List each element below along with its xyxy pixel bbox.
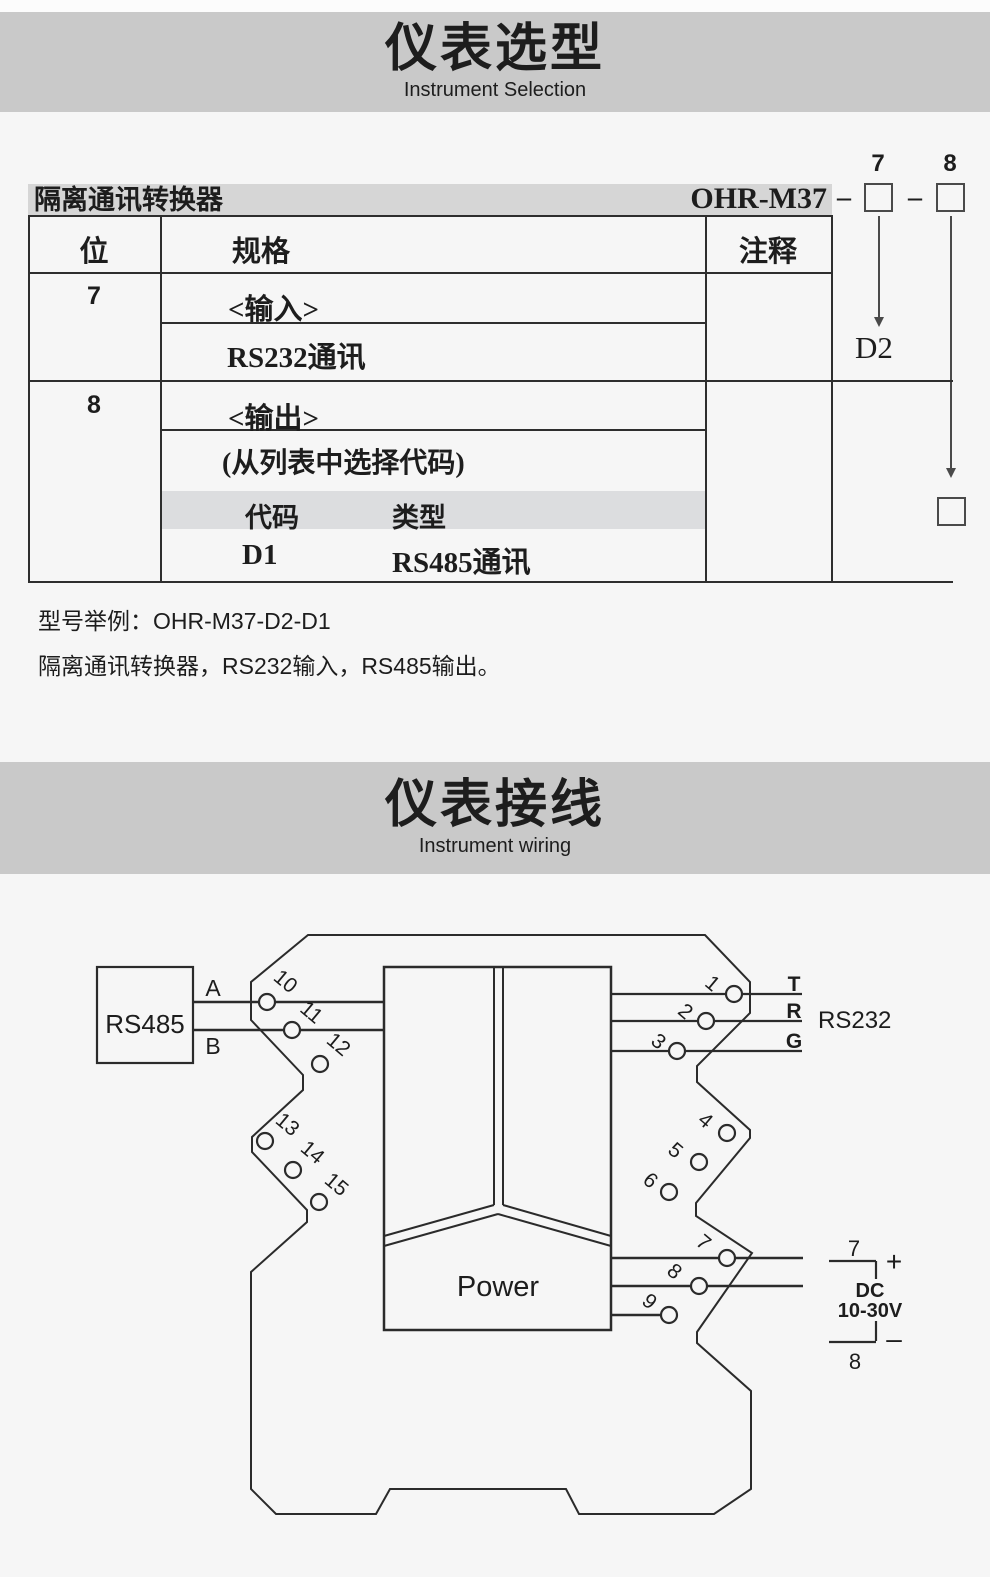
terminal-number-13: 13 (271, 1108, 304, 1141)
dc-top-terminal: 7 (848, 1236, 860, 1261)
wiring-header-band: 仪表接线 Instrument wiring (0, 762, 990, 874)
arrow-down-icon (874, 317, 884, 327)
terminal-circle-15 (311, 1194, 327, 1210)
row7-group: <输入> (228, 286, 319, 328)
row8-hint: (从列表中选择代码) (222, 441, 465, 481)
terminal-circle-8 (691, 1278, 707, 1294)
code-dash-2: – (908, 193, 922, 203)
row8-group: <输出> (228, 395, 319, 437)
row7-item: RS232通讯 (227, 334, 366, 376)
line-a-label: A (205, 975, 221, 1001)
table-border (160, 215, 162, 583)
top-margin (0, 0, 990, 12)
table-border (831, 215, 833, 583)
terminal-number-7: 7 (691, 1230, 715, 1255)
terminal-circle-2 (698, 1013, 714, 1029)
table-border (28, 380, 953, 382)
arrow-line-8 (950, 216, 952, 469)
selection-subtitle: Instrument Selection (404, 79, 586, 102)
arrow-down-icon (946, 468, 956, 478)
terminal-circle-11 (284, 1022, 300, 1038)
terminal-circle-1 (726, 986, 742, 1002)
terminal-number-14: 14 (296, 1136, 329, 1169)
dc-name: DC (856, 1280, 885, 1302)
rs232-label: RS232 (818, 1007, 891, 1034)
terminal-circle-14 (285, 1162, 301, 1178)
table-border (705, 215, 707, 583)
d2-callout: D2 (855, 330, 893, 366)
dc-range: 10-30V (838, 1300, 903, 1322)
product-bar: 隔离通讯转换器 OHR-M37 (28, 184, 832, 216)
header-spec: 规格 (232, 228, 290, 270)
core-v-line (384, 1214, 498, 1246)
r-label: R (786, 1000, 801, 1023)
datasheet-page: 仪表选型 Instrument Selection 隔离通讯转换器 OHR-M3… (0, 0, 990, 1577)
terminal-number-6: 6 (638, 1168, 662, 1193)
row8-digit: 8 (28, 391, 160, 420)
terminal-number-9: 9 (637, 1289, 661, 1314)
rs485-label: RS485 (105, 1009, 185, 1039)
wiring-diagram: RS485 A B Power T R G RS232 7 + DC 10-30… (0, 874, 990, 1577)
type-value: RS485通讯 (392, 539, 531, 581)
terminal-number-4: 4 (693, 1108, 717, 1133)
terminal-number-10: 10 (269, 965, 302, 998)
type-header: 类型 (392, 496, 446, 535)
code-value: D1 (242, 539, 277, 572)
selection-title: 仪表选型 (385, 22, 605, 77)
code-header: 代码 (245, 496, 299, 535)
row7-digit: 7 (28, 282, 160, 311)
wiring-subtitle: Instrument wiring (419, 835, 571, 858)
selection-header-band: 仪表选型 Instrument Selection (0, 12, 990, 112)
terminal-number-12: 12 (322, 1028, 355, 1061)
arrow-line-7 (878, 216, 880, 318)
digit-label-8: 8 (935, 150, 965, 178)
line-b-label: B (205, 1033, 220, 1059)
dc-plus: + (886, 1246, 902, 1277)
terminal-number-8: 8 (662, 1259, 686, 1284)
header-note: 注释 (705, 228, 831, 270)
terminal-circle-6 (661, 1184, 677, 1200)
code-box-8-target (937, 497, 966, 526)
terminal-circle-3 (669, 1043, 685, 1059)
code-dash-1: – (837, 193, 851, 203)
table-border (28, 215, 832, 217)
terminal-circle-5 (691, 1154, 707, 1170)
example-title: 型号举例：OHR-M37-D2-D1 (38, 602, 331, 636)
example-description: 隔离通讯转换器，RS232输入，RS485输出。 (38, 647, 501, 681)
terminal-number-5: 5 (663, 1138, 687, 1163)
t-label: T (788, 973, 801, 996)
code-box-7 (864, 183, 893, 212)
product-model: OHR-M37 (690, 182, 827, 216)
terminal-circle-4 (719, 1125, 735, 1141)
terminal-circle-7 (719, 1250, 735, 1266)
code-box-8 (936, 183, 965, 212)
product-name: 隔离通讯转换器 (34, 185, 223, 215)
terminal-number-1: 1 (700, 971, 724, 996)
wiring-title: 仪表接线 (385, 778, 605, 833)
terminal-circle-9 (661, 1307, 677, 1323)
dc-bottom-terminal: 8 (849, 1349, 861, 1374)
terminal-circle-13 (257, 1133, 273, 1149)
g-label: G (786, 1030, 802, 1053)
header-position: 位 (28, 228, 160, 270)
dc-minus: – (886, 1323, 902, 1354)
digit-label-7: 7 (863, 150, 893, 178)
table-border (28, 581, 953, 583)
terminal-circle-12 (312, 1056, 328, 1072)
power-label: Power (457, 1271, 540, 1303)
terminal-circle-10 (259, 994, 275, 1010)
table-border (28, 272, 832, 274)
